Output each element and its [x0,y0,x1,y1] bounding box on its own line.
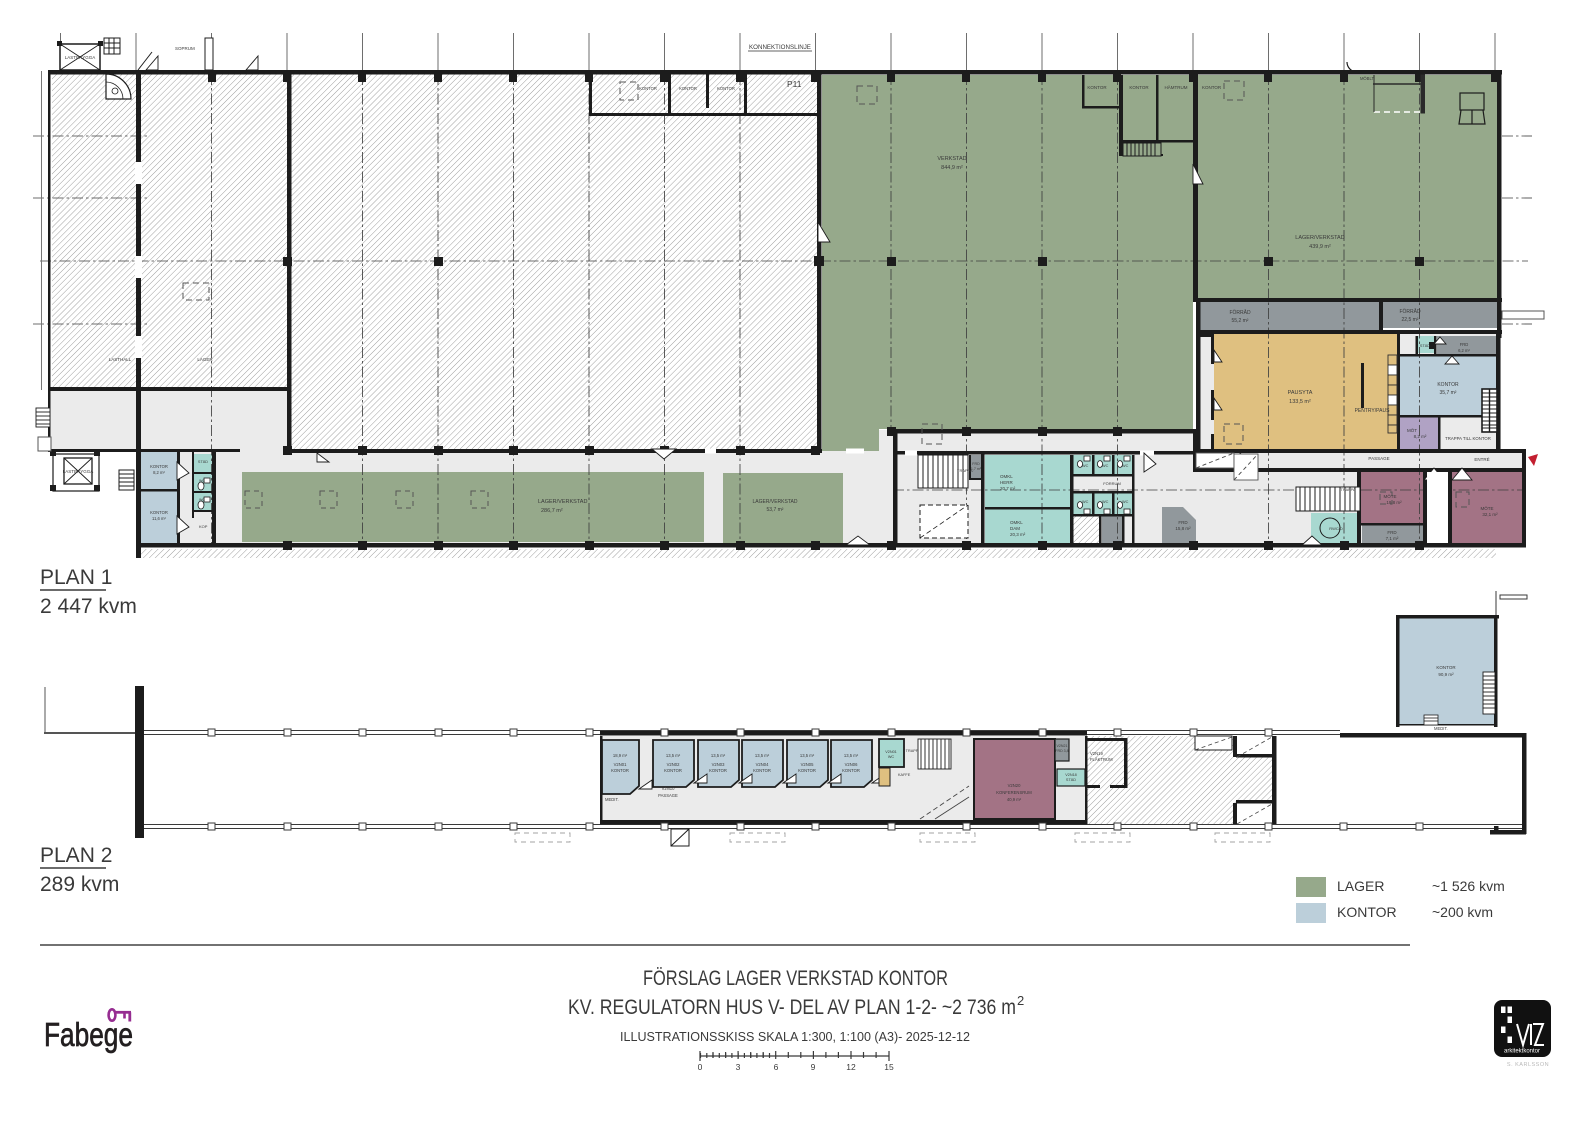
svg-text:HERR: HERR [1000,480,1014,485]
svg-text:WC: WC [1082,464,1089,468]
svg-text:WC: WC [1122,500,1129,504]
svg-text:12: 12 [846,1062,856,1072]
svg-text:MÖTE: MÖTE [1384,493,1397,499]
svg-text:TRAPP: TRAPP [906,749,919,753]
svg-text:KONTOR: KONTOR [1337,904,1397,920]
svg-text:9: 9 [811,1062,816,1072]
svg-text:19,8 m²: 19,8 m² [1386,500,1402,505]
svg-text:V2N20: V2N20 [1008,783,1021,788]
svg-text:TRAPPA: TRAPPA [1341,488,1356,492]
svg-text:TRAPPA TILL KONTOR: TRAPPA TILL KONTOR [1445,436,1491,441]
svg-text:KONTOR: KONTOR [679,86,697,91]
svg-text:KONTOR: KONTOR [150,464,168,469]
svg-text:20,7 m²: 20,7 m² [1000,486,1016,491]
svg-text:11,6 m²: 11,6 m² [152,516,166,521]
svg-text:289 kvm: 289 kvm [40,873,119,896]
svg-text:FLÄKTRUM: FLÄKTRUM [1090,757,1113,762]
svg-text:40,9 m²: 40,9 m² [1007,797,1022,802]
svg-text:V2N06: V2N06 [845,762,858,767]
svg-text:~1 526 kvm: ~1 526 kvm [1432,878,1505,894]
svg-text:WC: WC [199,498,205,502]
svg-text:2: 2 [1017,993,1024,1008]
svg-text:LAGER: LAGER [197,357,213,362]
svg-text:MEDIT.: MEDIT. [605,797,619,802]
svg-text:LASTBRYGGA: LASTBRYGGA [65,55,95,60]
svg-text:439,9 m²: 439,9 m² [1309,244,1331,250]
svg-text:55,2 m²: 55,2 m² [1232,318,1249,324]
svg-text:WC: WC [888,755,895,759]
svg-text:13,5 m²: 13,5 m² [844,753,859,758]
svg-text:KONTOR: KONTOR [1129,85,1149,90]
svg-text:STÄD: STÄD [1066,778,1076,782]
svg-text:8,2 m²: 8,2 m² [1414,434,1427,439]
svg-text:FRD: FRD [1178,520,1188,525]
svg-text:KONTOR: KONTOR [798,768,816,773]
svg-text:13,5 m²: 13,5 m² [800,753,815,758]
svg-text:PASSAGE: PASSAGE [1368,456,1389,461]
svg-text:7,1 m²: 7,1 m² [1386,536,1399,541]
svg-text:HÄMTRUM: HÄMTRUM [1165,84,1188,90]
svg-text:15,8 m²: 15,8 m² [1175,526,1191,531]
svg-text:KAFFE: KAFFE [898,773,911,777]
svg-text:OMKL: OMKL [1000,474,1013,479]
svg-text:V2N01: V2N01 [885,750,897,754]
svg-text:KONNEKTIONSLINJE: KONNEKTIONSLINJE [749,44,811,51]
svg-text:133,5 m²: 133,5 m² [1289,399,1311,405]
svg-text:ENTRÉ: ENTRÉ [1474,456,1489,462]
svg-text:SOPRUM: SOPRUM [175,46,195,51]
svg-text:MÖT: MÖT [1407,427,1417,433]
svg-text:53,7 m²: 53,7 m² [767,507,784,513]
svg-text:S. KARLSSON: S. KARLSSON [1507,1062,1549,1068]
svg-text:KONFERENSRUM: KONFERENSRUM [996,790,1032,795]
svg-text:V2N21: V2N21 [1057,744,1068,748]
svg-text:6,2 m²: 6,2 m² [1458,348,1470,353]
svg-text:WC: WC [1122,464,1129,468]
svg-text:KONTOR: KONTOR [842,768,860,773]
svg-text:V2N18: V2N18 [1065,773,1077,777]
svg-text:PLAN 1: PLAN 1 [40,566,112,589]
svg-text:KONTOR: KONTOR [717,86,735,91]
svg-text:V2N19: V2N19 [1090,751,1103,756]
svg-text:1,7 m²: 1,7 m² [971,467,982,471]
svg-text:2 447 kvm: 2 447 kvm [40,595,137,618]
svg-text:LAGER/VERKSTAD: LAGER/VERKSTAD [538,499,587,505]
svg-text:WC: WC [199,479,205,483]
svg-text:WC: WC [1082,500,1089,504]
svg-text:KONTOR: KONTOR [709,768,727,773]
svg-text:13,5 m²: 13,5 m² [711,753,726,758]
svg-text:35,7 m²: 35,7 m² [1440,390,1457,396]
svg-text:V2N02: V2N02 [667,762,680,767]
svg-text:22,5 m²: 22,5 m² [1402,317,1419,323]
svg-text:ILLUSTRATIONSSKISS SKALA 1:300: ILLUSTRATIONSSKISS SKALA 1:300, 1:100 (A… [620,1029,970,1044]
svg-text:0: 0 [698,1062,703,1072]
svg-text:LAGER: LAGER [1337,878,1384,894]
svg-text:KOP: KOP [199,524,208,529]
svg-text:STÄD: STÄD [1420,344,1430,348]
svg-text:KONTOR: KONTOR [1436,665,1456,670]
svg-text:844,9 m²: 844,9 m² [941,165,963,171]
svg-text:STÄD: STÄD [198,460,208,464]
svg-text:LASTHALL: LASTHALL [109,357,132,362]
svg-text:KV. REGULATORN HUS V- DEL AV P: KV. REGULATORN HUS V- DEL AV PLAN 1-2- ~… [568,996,1016,1019]
svg-text:15: 15 [884,1062,894,1072]
svg-text:MÖTE: MÖTE [1481,505,1494,511]
svg-text:MÖBLT: MÖBLT [1360,76,1375,81]
svg-text:V2N01: V2N01 [614,762,627,767]
svg-text:32,1 m²: 32,1 m² [1482,512,1498,517]
svg-text:FÖRRÅD: FÖRRÅD [1399,308,1421,315]
svg-text:90,9 m²: 90,9 m² [1438,672,1454,677]
svg-text:FRD 3,8: FRD 3,8 [1055,749,1068,753]
svg-text:FRD: FRD [1460,342,1469,347]
svg-text:WC: WC [1102,464,1109,468]
svg-text:KONTOR: KONTOR [1087,85,1107,90]
svg-text:~200 kvm: ~200 kvm [1432,904,1493,920]
svg-text:13,5 m²: 13,5 m² [755,753,770,758]
svg-text:KONTOR: KONTOR [753,768,771,773]
svg-text:13,5 m²: 13,5 m² [666,753,681,758]
svg-text:V2N05: V2N05 [801,762,814,767]
svg-text:RWC/D: RWC/D [1329,526,1343,531]
svg-text:P11: P11 [787,79,802,89]
svg-text:KONTOR: KONTOR [1437,382,1459,388]
svg-text:KONTOR: KONTOR [611,768,629,773]
svg-text:V2N10: V2N10 [662,786,675,791]
svg-text:OMKL: OMKL [1010,520,1023,525]
svg-text:MEDIT.: MEDIT. [1434,726,1448,731]
svg-text:V2N04: V2N04 [756,762,769,767]
svg-text:PASSAGE: PASSAGE [658,793,678,798]
svg-text:arkitektkontor: arkitektkontor [1504,1049,1540,1055]
svg-text:VERKSTAD: VERKSTAD [937,156,966,162]
svg-text:FÖRRÅD: FÖRRÅD [1229,309,1251,316]
svg-text:FÖRRUM: FÖRRUM [1103,481,1121,486]
svg-text:8,2 m²: 8,2 m² [153,470,165,475]
svg-text:6: 6 [774,1062,779,1072]
svg-text:PENTRY/PAUS: PENTRY/PAUS [1355,408,1390,414]
svg-text:PAUSYTA: PAUSYTA [1288,390,1313,396]
svg-text:FÖRSLAG LAGER VERKSTAD KONTOR: FÖRSLAG LAGER VERKSTAD KONTOR [643,967,948,990]
svg-text:KONTOR: KONTOR [1202,85,1222,90]
svg-text:LAGER/VERKSTAD: LAGER/VERKSTAD [1295,235,1344,241]
svg-text:LAGER/VERKSTAD: LAGER/VERKSTAD [753,499,798,505]
svg-text:V2N03: V2N03 [712,762,725,767]
svg-text:KONTOR: KONTOR [150,510,168,515]
svg-text:WC: WC [1102,500,1109,504]
svg-text:FRD: FRD [972,462,980,466]
svg-text:PLAN 2: PLAN 2 [40,844,112,867]
svg-text:DAM: DAM [1010,526,1020,531]
svg-text:3: 3 [736,1062,741,1072]
svg-text:KONTOR: KONTOR [639,86,657,91]
svg-text:FRD: FRD [1387,530,1397,535]
svg-text:KONTOR: KONTOR [664,768,682,773]
svg-text:286,7 m²: 286,7 m² [541,508,563,514]
svg-text:Fabege: Fabege [44,1016,133,1053]
svg-text:20,3 m²: 20,3 m² [1010,532,1026,537]
svg-text:18,9 m²: 18,9 m² [613,753,628,758]
svg-text:LASTBRYGGA: LASTBRYGGA [63,469,93,474]
